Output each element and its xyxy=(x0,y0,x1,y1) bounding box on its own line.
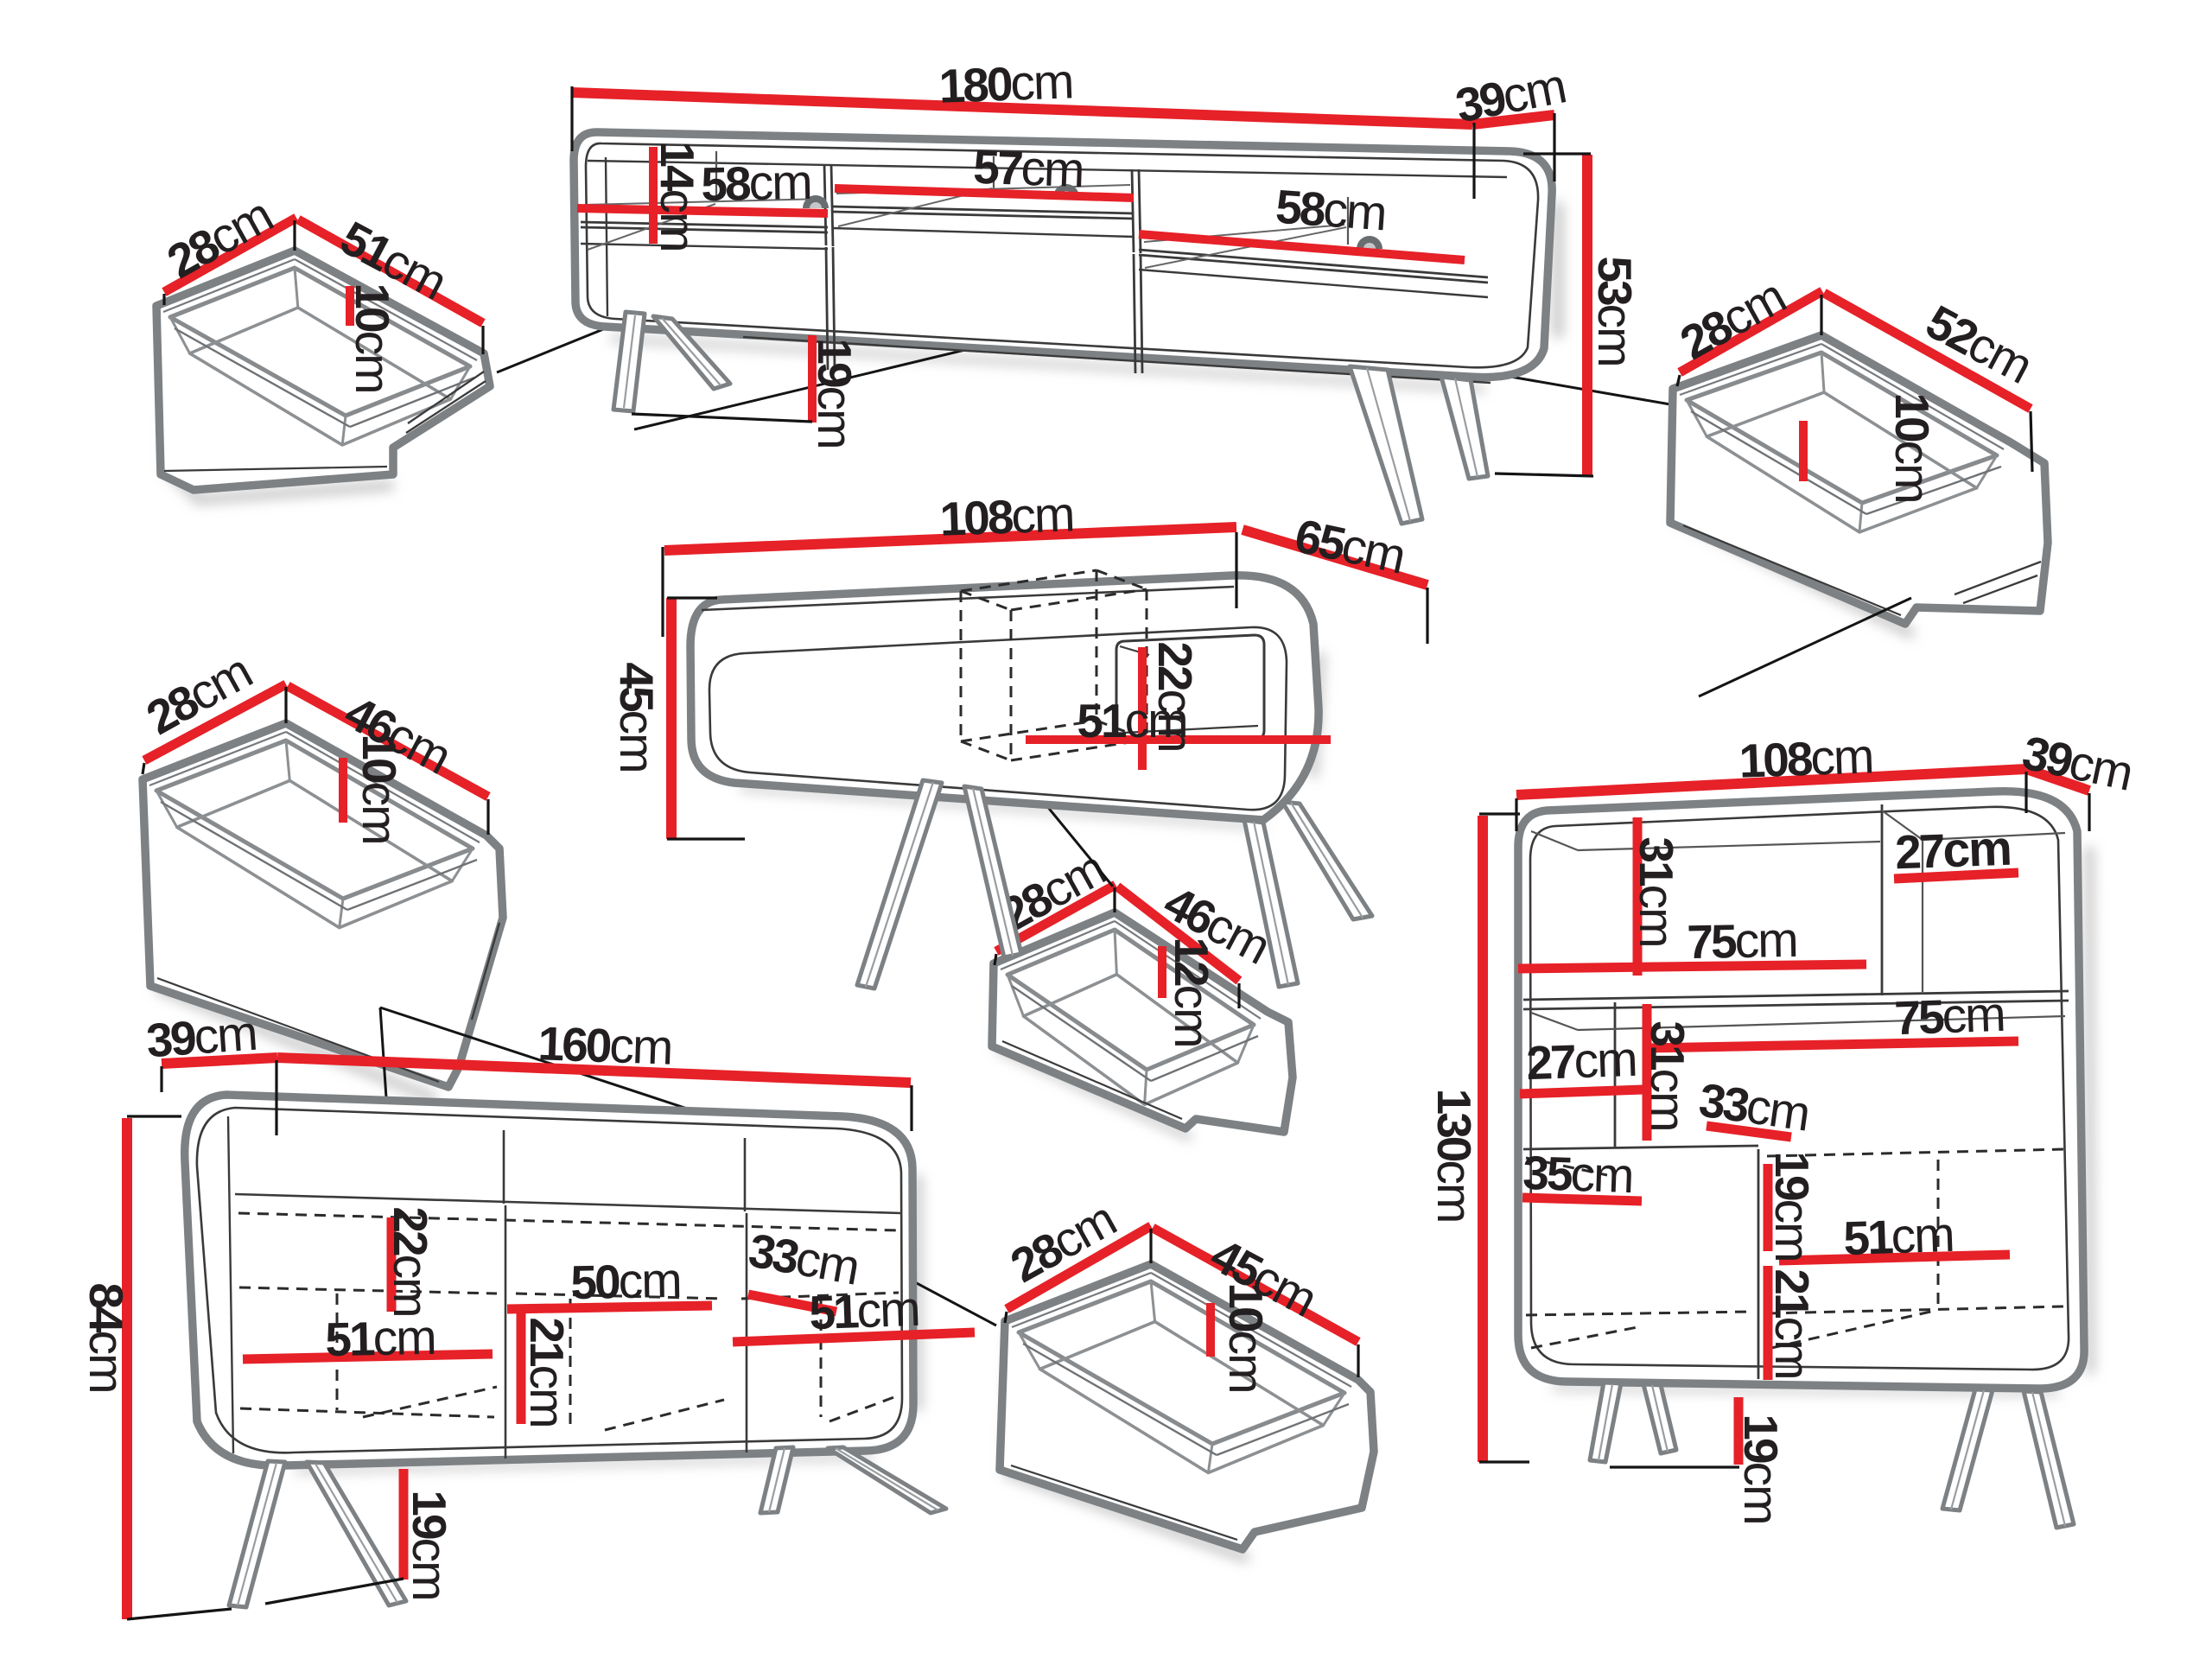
svg-text:53cm: 53cm xyxy=(1587,256,1643,365)
svg-text:10cm: 10cm xyxy=(1885,392,1940,502)
svg-text:31cm: 31cm xyxy=(1640,1020,1695,1130)
svg-text:58cm: 58cm xyxy=(701,155,811,212)
svg-text:130cm: 130cm xyxy=(1427,1089,1482,1223)
svg-text:10cm: 10cm xyxy=(345,283,400,392)
svg-text:51cm: 51cm xyxy=(325,1310,435,1367)
svg-text:10cm: 10cm xyxy=(1218,1282,1274,1392)
svg-text:31cm: 31cm xyxy=(1629,836,1684,946)
svg-text:108cm: 108cm xyxy=(939,486,1075,546)
svg-text:51cm: 51cm xyxy=(808,1281,919,1340)
svg-text:12cm: 12cm xyxy=(1164,937,1219,1046)
svg-text:45cm: 45cm xyxy=(609,662,664,772)
svg-text:19cm: 19cm xyxy=(1764,1151,1820,1261)
svg-text:51cm: 51cm xyxy=(1077,693,1186,748)
svg-text:39cm: 39cm xyxy=(144,1006,257,1069)
svg-text:19cm: 19cm xyxy=(402,1490,457,1599)
svg-text:50cm: 50cm xyxy=(570,1253,681,1310)
svg-text:75cm: 75cm xyxy=(1893,987,2005,1046)
svg-text:27cm: 27cm xyxy=(1525,1032,1637,1090)
svg-text:10cm: 10cm xyxy=(352,734,407,843)
svg-text:27cm: 27cm xyxy=(1894,821,2012,880)
svg-text:19cm: 19cm xyxy=(807,338,862,448)
svg-text:35cm: 35cm xyxy=(1522,1145,1633,1204)
svg-text:75cm: 75cm xyxy=(1687,912,1797,969)
svg-text:21cm: 21cm xyxy=(1764,1268,1820,1378)
svg-text:160cm: 160cm xyxy=(537,1015,673,1075)
svg-text:180cm: 180cm xyxy=(938,54,1074,113)
svg-text:58cm: 58cm xyxy=(1274,179,1387,242)
svg-text:14cm: 14cm xyxy=(650,141,705,251)
svg-text:108cm: 108cm xyxy=(1738,728,1874,788)
svg-text:51cm: 51cm xyxy=(1842,1207,1954,1266)
svg-text:22cm: 22cm xyxy=(383,1206,438,1316)
svg-text:84cm: 84cm xyxy=(79,1282,134,1392)
svg-text:19cm: 19cm xyxy=(1733,1414,1789,1523)
svg-text:57cm: 57cm xyxy=(972,139,1084,198)
svg-text:21cm: 21cm xyxy=(519,1317,575,1427)
